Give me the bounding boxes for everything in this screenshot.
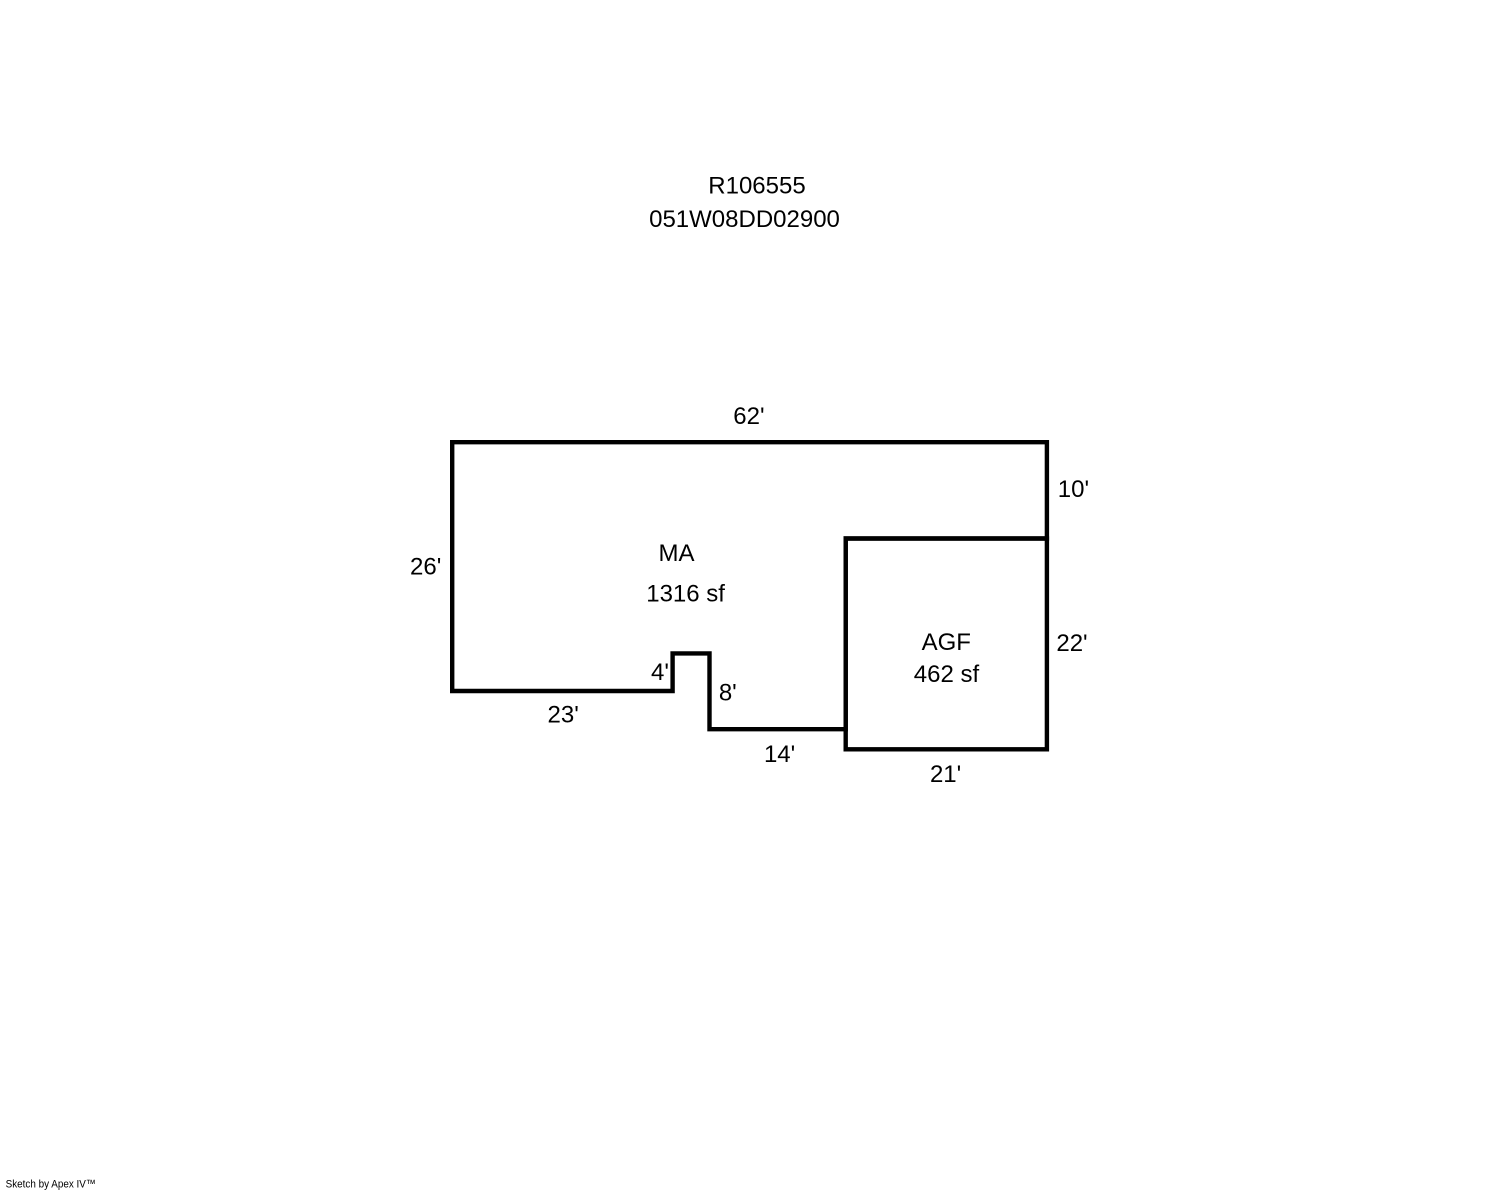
svg-text:4': 4' [651,659,669,686]
svg-text:22': 22' [1056,630,1087,657]
svg-text:Sketch by Apex IV™: Sketch by Apex IV™ [6,1178,96,1190]
svg-text:62': 62' [733,403,764,430]
svg-text:14': 14' [764,741,795,768]
svg-text:R106555: R106555 [708,173,805,200]
svg-text:051W08DD02900: 051W08DD02900 [649,206,840,233]
svg-text:462 sf: 462 sf [914,661,980,688]
svg-text:26': 26' [410,553,441,580]
svg-text:21': 21' [930,761,961,788]
svg-text:8': 8' [719,679,737,706]
svg-text:1316 sf: 1316 sf [646,581,725,608]
svg-text:AGF: AGF [922,629,971,656]
svg-text:MA: MA [659,540,695,567]
svg-text:23': 23' [548,702,579,729]
svg-text:10': 10' [1058,476,1089,503]
